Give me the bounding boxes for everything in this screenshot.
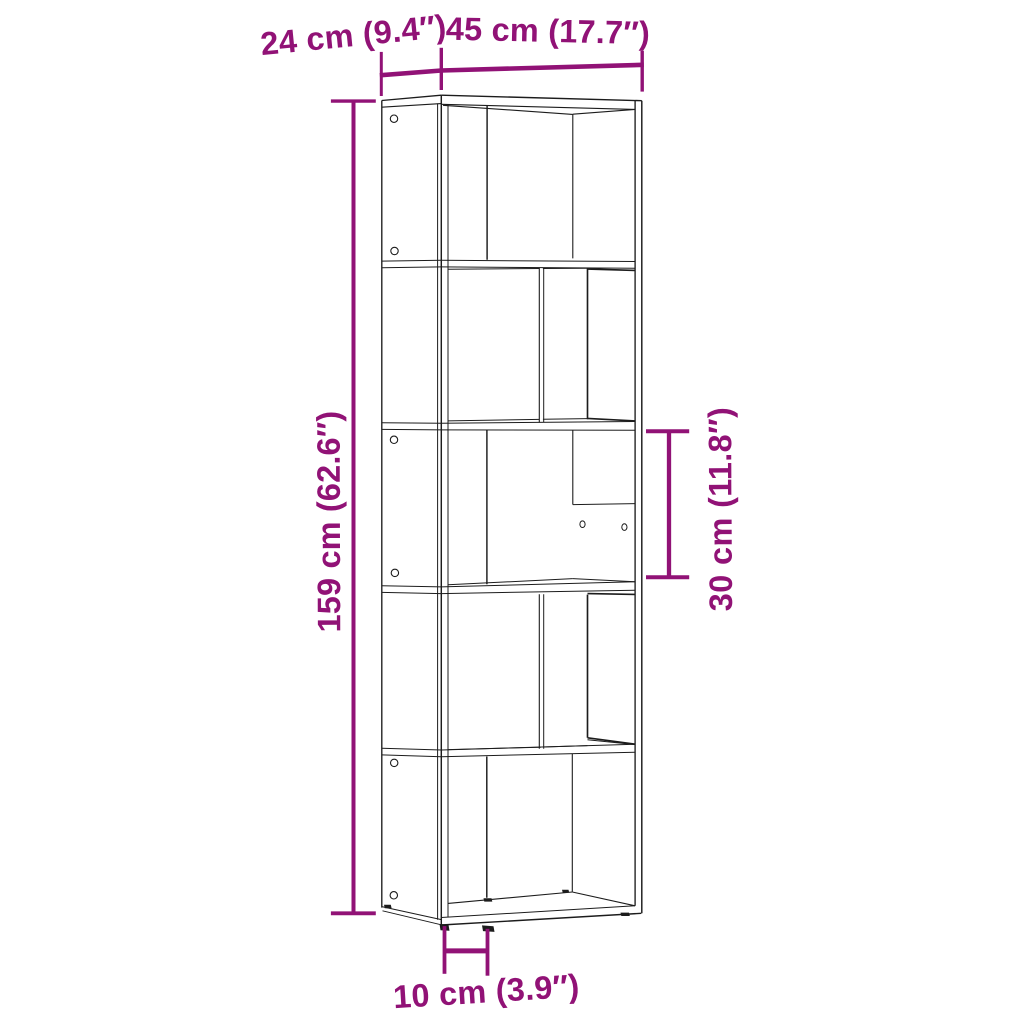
svg-text:10 cm (3.9″): 10 cm (3.9″): [392, 968, 580, 1016]
svg-text:30 cm (11.8″): 30 cm (11.8″): [702, 407, 739, 612]
svg-text:159 cm (62.6″): 159 cm (62.6″): [311, 411, 348, 633]
svg-text:24 cm (9.4″): 24 cm (9.4″): [259, 8, 448, 62]
svg-text:45 cm (17.7″): 45 cm (17.7″): [445, 11, 650, 52]
